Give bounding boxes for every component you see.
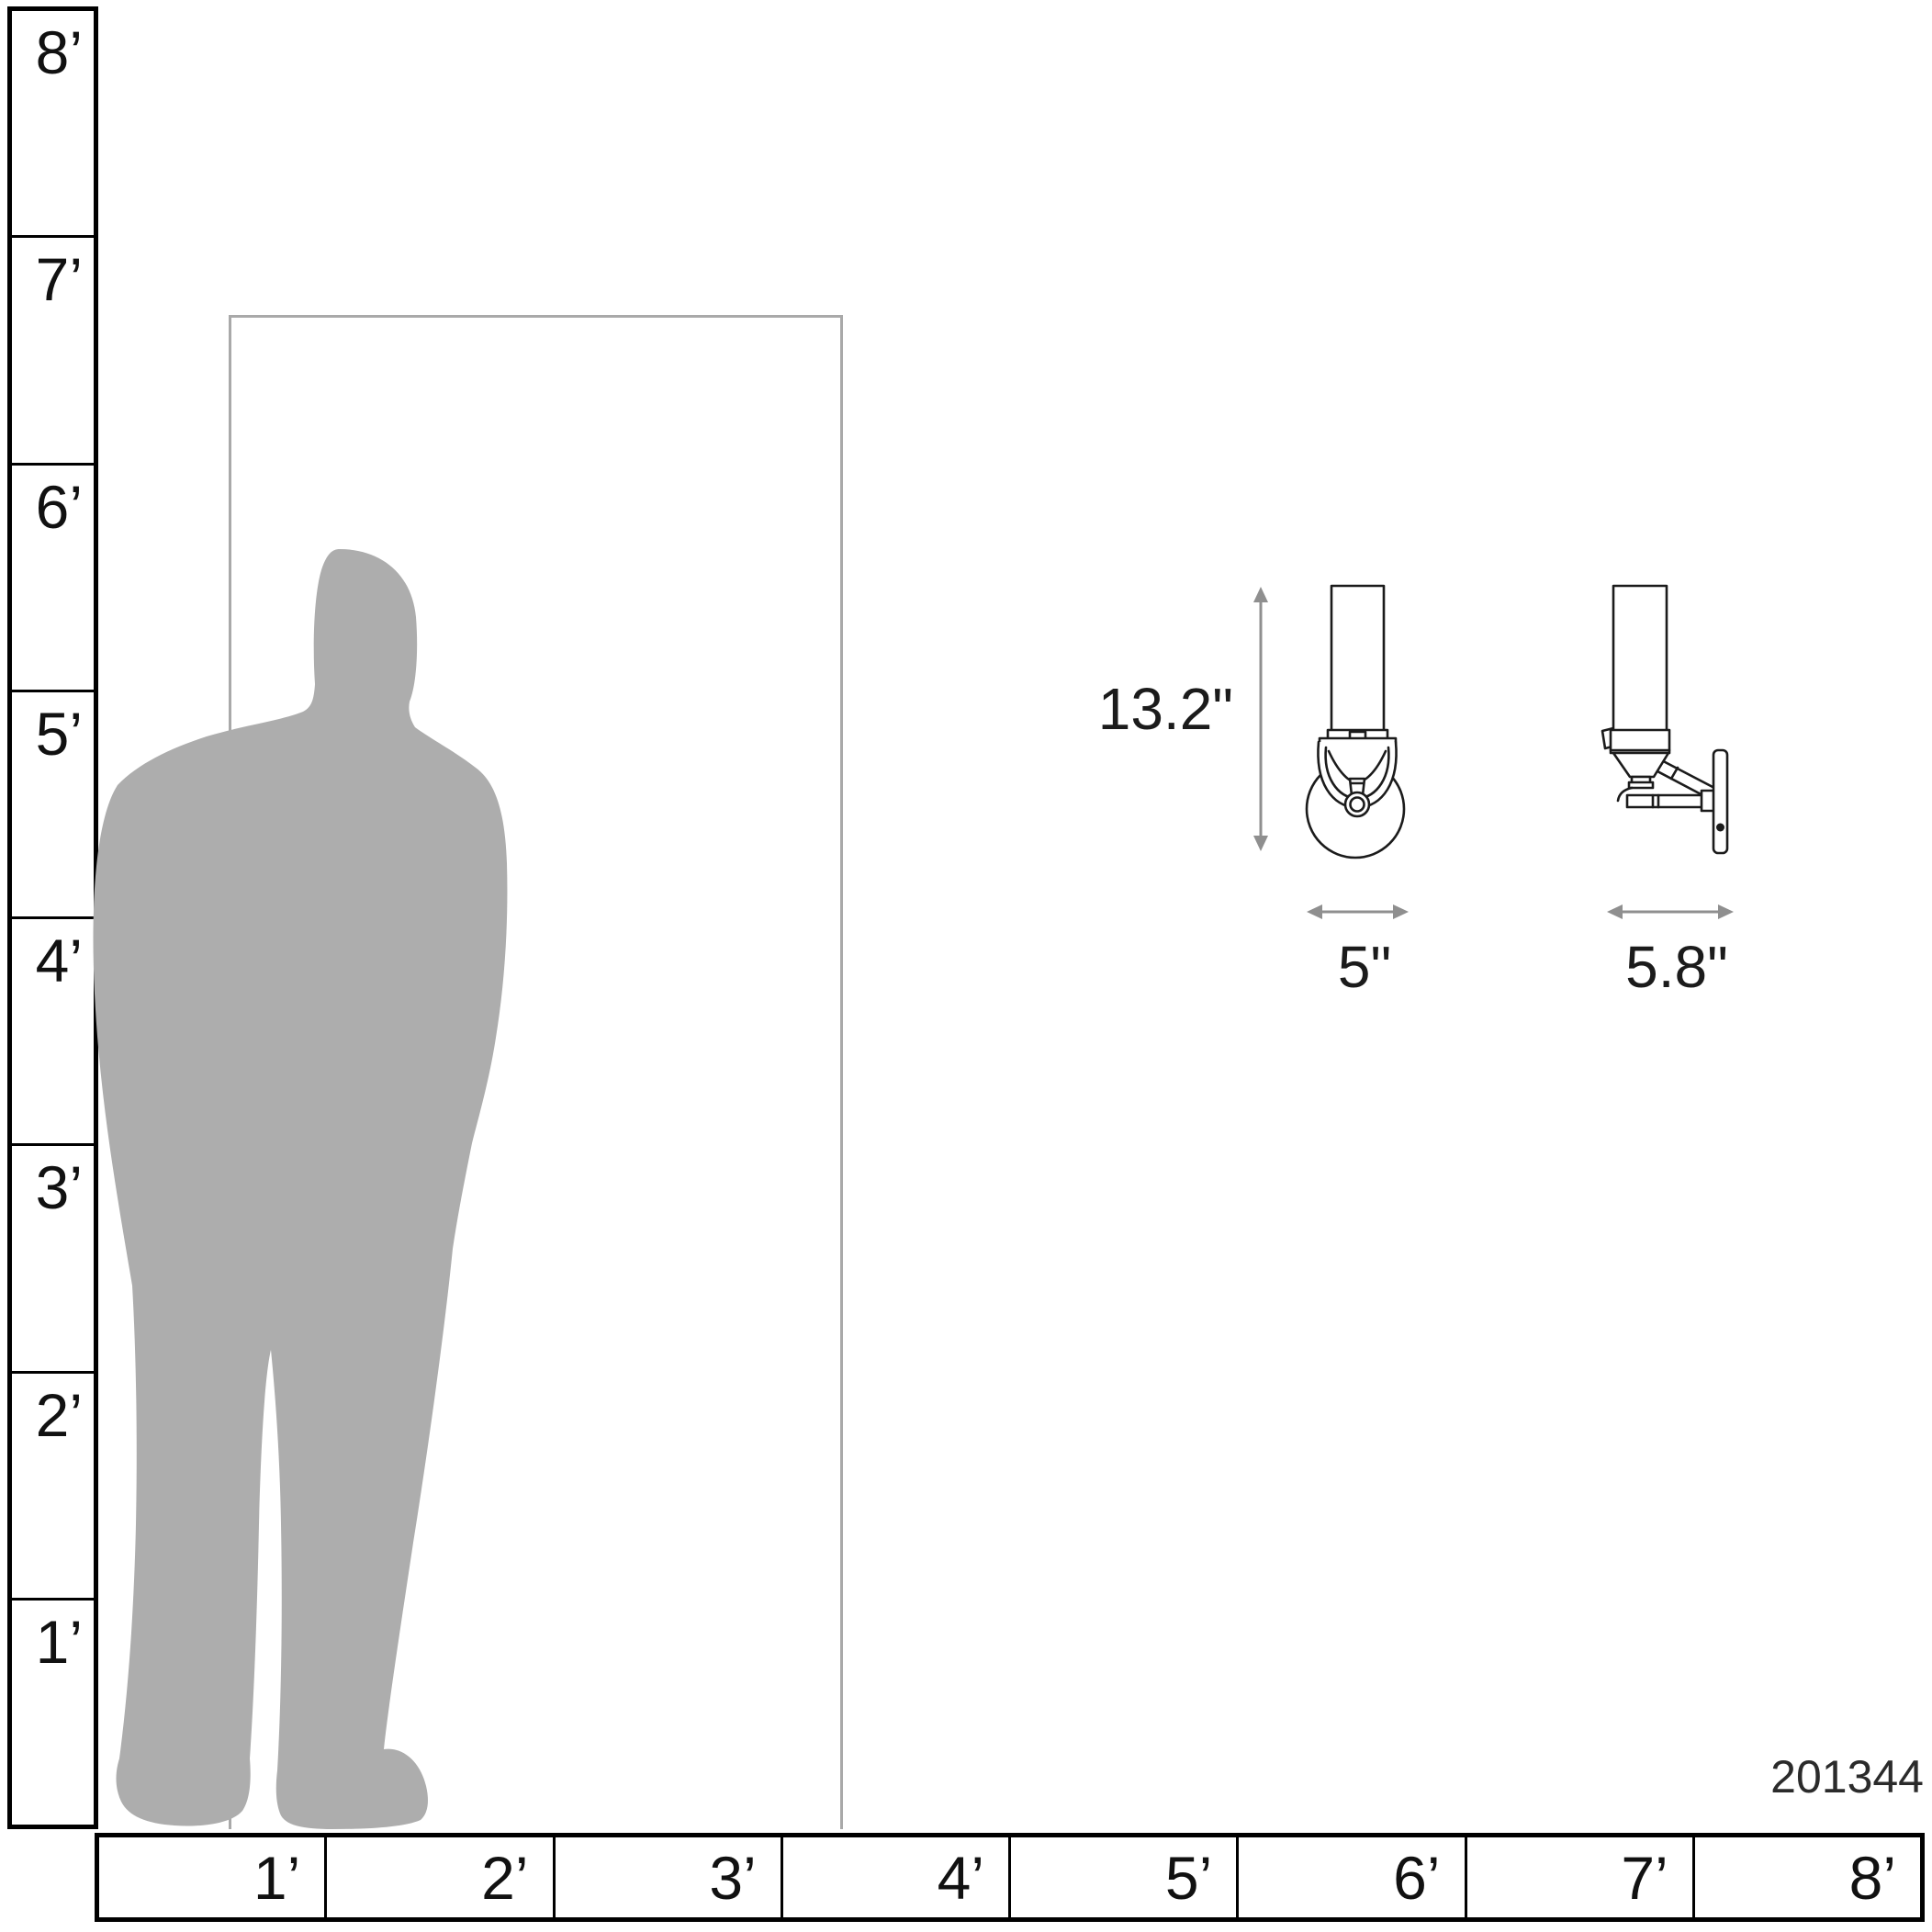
person-silhouette [93, 549, 507, 1829]
height-dimension-arrow [1253, 587, 1268, 851]
width-dimension-arrow [1307, 904, 1409, 919]
height-dimension-label: 13.2" [1050, 680, 1233, 738]
product-code: 201344 [1770, 1754, 1924, 1800]
product-scale-diagram: 8’ 7’ 6’ 5’ 4’ 3’ 2’ 1’ 1’ 2’ 3’ 4’ 5’ 6… [0, 0, 1932, 1932]
sconce-side-view [1602, 586, 1727, 853]
depth-dimension-arrow [1607, 904, 1734, 919]
sconce-front-view [1307, 586, 1404, 858]
width-dimension-label: 5" [1273, 938, 1456, 996]
depth-dimension-label: 5.8" [1585, 938, 1769, 996]
